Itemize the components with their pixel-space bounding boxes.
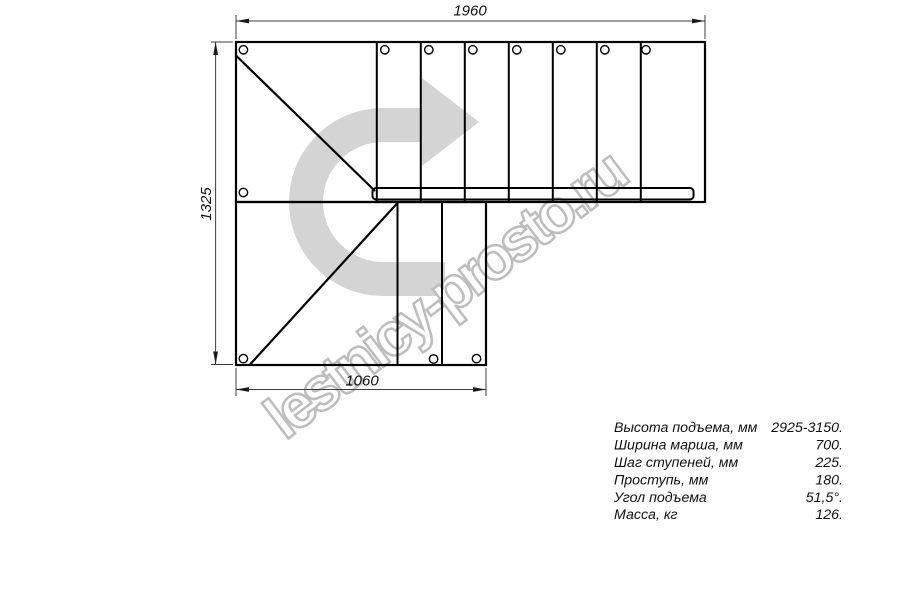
svg-text:1960: 1960	[453, 3, 487, 20]
svg-text:2925-3150.: 2925-3150.	[770, 420, 843, 436]
svg-text:Масса, кг: Масса, кг	[614, 507, 678, 523]
svg-text:Шаг ступеней, мм: Шаг ступеней, мм	[614, 455, 738, 471]
svg-text:Высота подъема, мм: Высота подъема, мм	[614, 420, 758, 436]
svg-text:1060: 1060	[345, 373, 379, 390]
svg-text:1325: 1325	[198, 187, 215, 221]
svg-text:225.: 225.	[814, 455, 843, 471]
svg-text:Угол подъема: Угол подъема	[613, 490, 707, 506]
svg-text:180.: 180.	[815, 473, 843, 489]
svg-text:Проступь, мм: Проступь, мм	[614, 473, 709, 489]
svg-text:51,5°.: 51,5°.	[806, 490, 843, 506]
svg-text:Ширина марша, мм: Ширина марша, мм	[614, 438, 743, 454]
svg-text:126.: 126.	[815, 507, 843, 523]
svg-text:700.: 700.	[815, 438, 843, 454]
